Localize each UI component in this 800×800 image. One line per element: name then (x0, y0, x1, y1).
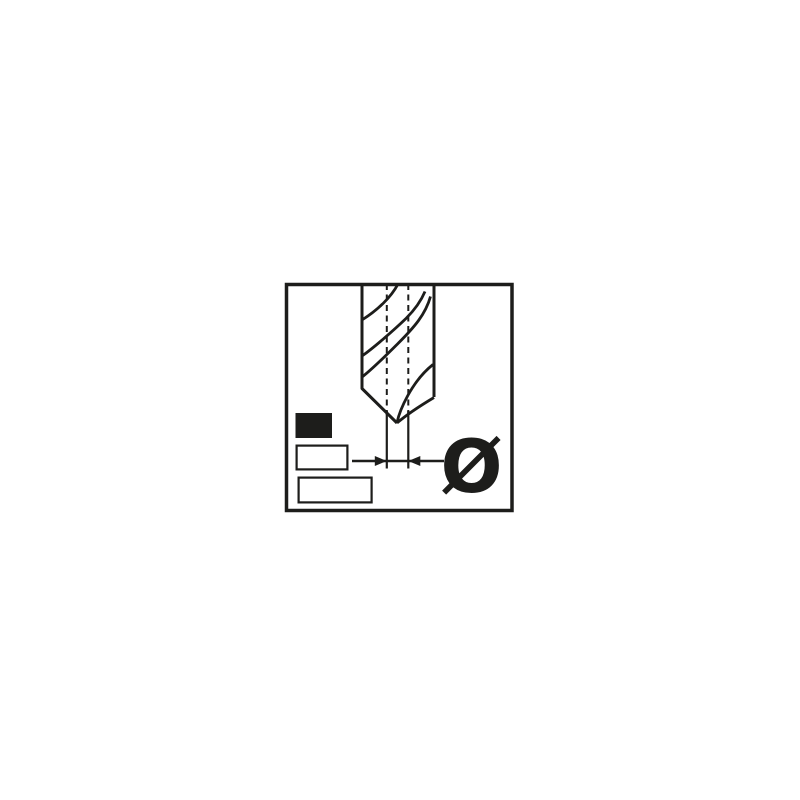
drill-diameter-pictogram: Ø (0, 0, 800, 800)
legend-swatches (296, 413, 372, 502)
drill-bit-icon (362, 284, 434, 423)
product-pictogram-canvas: Ø (0, 0, 800, 800)
page-background: { "colors": { "ink": "#1d1d1b", "backgro… (0, 0, 800, 800)
drill-cutting-lip (397, 398, 434, 424)
drill-flute-top-hook (363, 284, 398, 320)
drill-spiral-lower (363, 297, 431, 377)
arrowhead-right-icon (375, 456, 387, 466)
filled-swatch-icon (296, 413, 333, 438)
arrowhead-left-icon (408, 456, 420, 466)
drill-flute-face-curve (397, 365, 433, 423)
outlined-swatch-small-icon (297, 446, 348, 470)
outlined-swatch-large-icon (299, 478, 372, 503)
diameter-symbol: Ø (440, 425, 502, 510)
